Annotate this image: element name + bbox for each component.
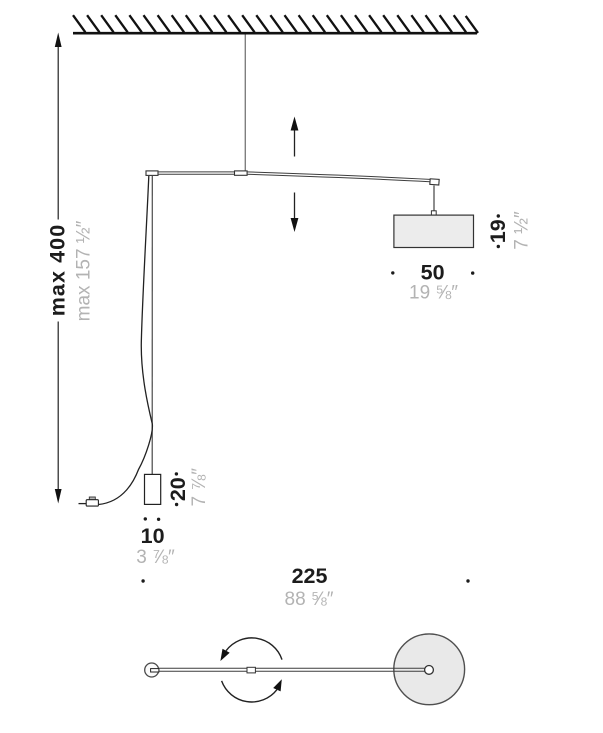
svg-text:20: 20: [166, 477, 190, 501]
svg-text:10: 10: [141, 524, 165, 548]
svg-text:max 400: max 400: [46, 224, 70, 317]
svg-text:88 ⅝″: 88 ⅝″: [285, 589, 334, 610]
svg-text:max 157 ½″: max 157 ½″: [74, 220, 95, 321]
svg-text:7 ⅞″: 7 ⅞″: [189, 468, 210, 507]
svg-text:7 ½″: 7 ½″: [512, 211, 533, 250]
svg-text:50: 50: [421, 260, 445, 284]
svg-text:225: 225: [292, 564, 328, 588]
svg-text:19: 19: [486, 219, 510, 243]
svg-text:19 ⅝″: 19 ⅝″: [409, 283, 458, 304]
svg-text:3 ⅞″: 3 ⅞″: [136, 547, 175, 568]
